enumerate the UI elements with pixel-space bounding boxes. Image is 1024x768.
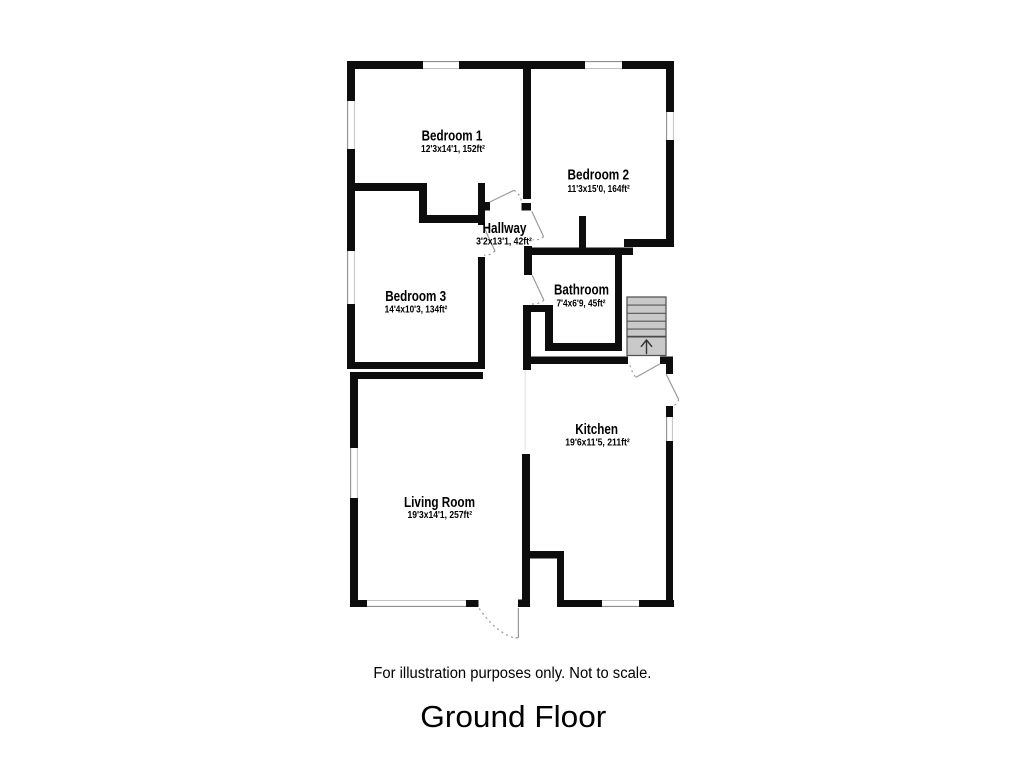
svg-text:19'3x14'1, 257ft²: 19'3x14'1, 257ft² [408, 509, 473, 521]
svg-text:11'3x15'0, 164ft²: 11'3x15'0, 164ft² [568, 183, 631, 195]
svg-text:Bedroom 3: Bedroom 3 [385, 288, 446, 305]
svg-text:Kitchen: Kitchen [575, 421, 618, 438]
svg-text:Bedroom 1: Bedroom 1 [422, 128, 483, 145]
svg-text:For illustration purposes only: For illustration purposes only. Not to s… [373, 665, 651, 682]
svg-text:Hallway: Hallway [483, 220, 528, 237]
svg-text:3'2x13'1, 42ft²: 3'2x13'1, 42ft² [476, 236, 532, 248]
svg-text:19'6x11'5, 211ft²: 19'6x11'5, 211ft² [565, 437, 630, 449]
svg-text:12'3x14'1, 152ft²: 12'3x14'1, 152ft² [421, 143, 485, 155]
svg-text:7'4x6'9, 45ft²: 7'4x6'9, 45ft² [556, 298, 605, 310]
svg-text:14'4x10'3, 134ft²: 14'4x10'3, 134ft² [385, 304, 448, 316]
svg-text:Bathroom: Bathroom [554, 282, 609, 299]
svg-text:Ground Floor: Ground Floor [420, 699, 606, 734]
svg-text:Bedroom 2: Bedroom 2 [568, 167, 630, 184]
